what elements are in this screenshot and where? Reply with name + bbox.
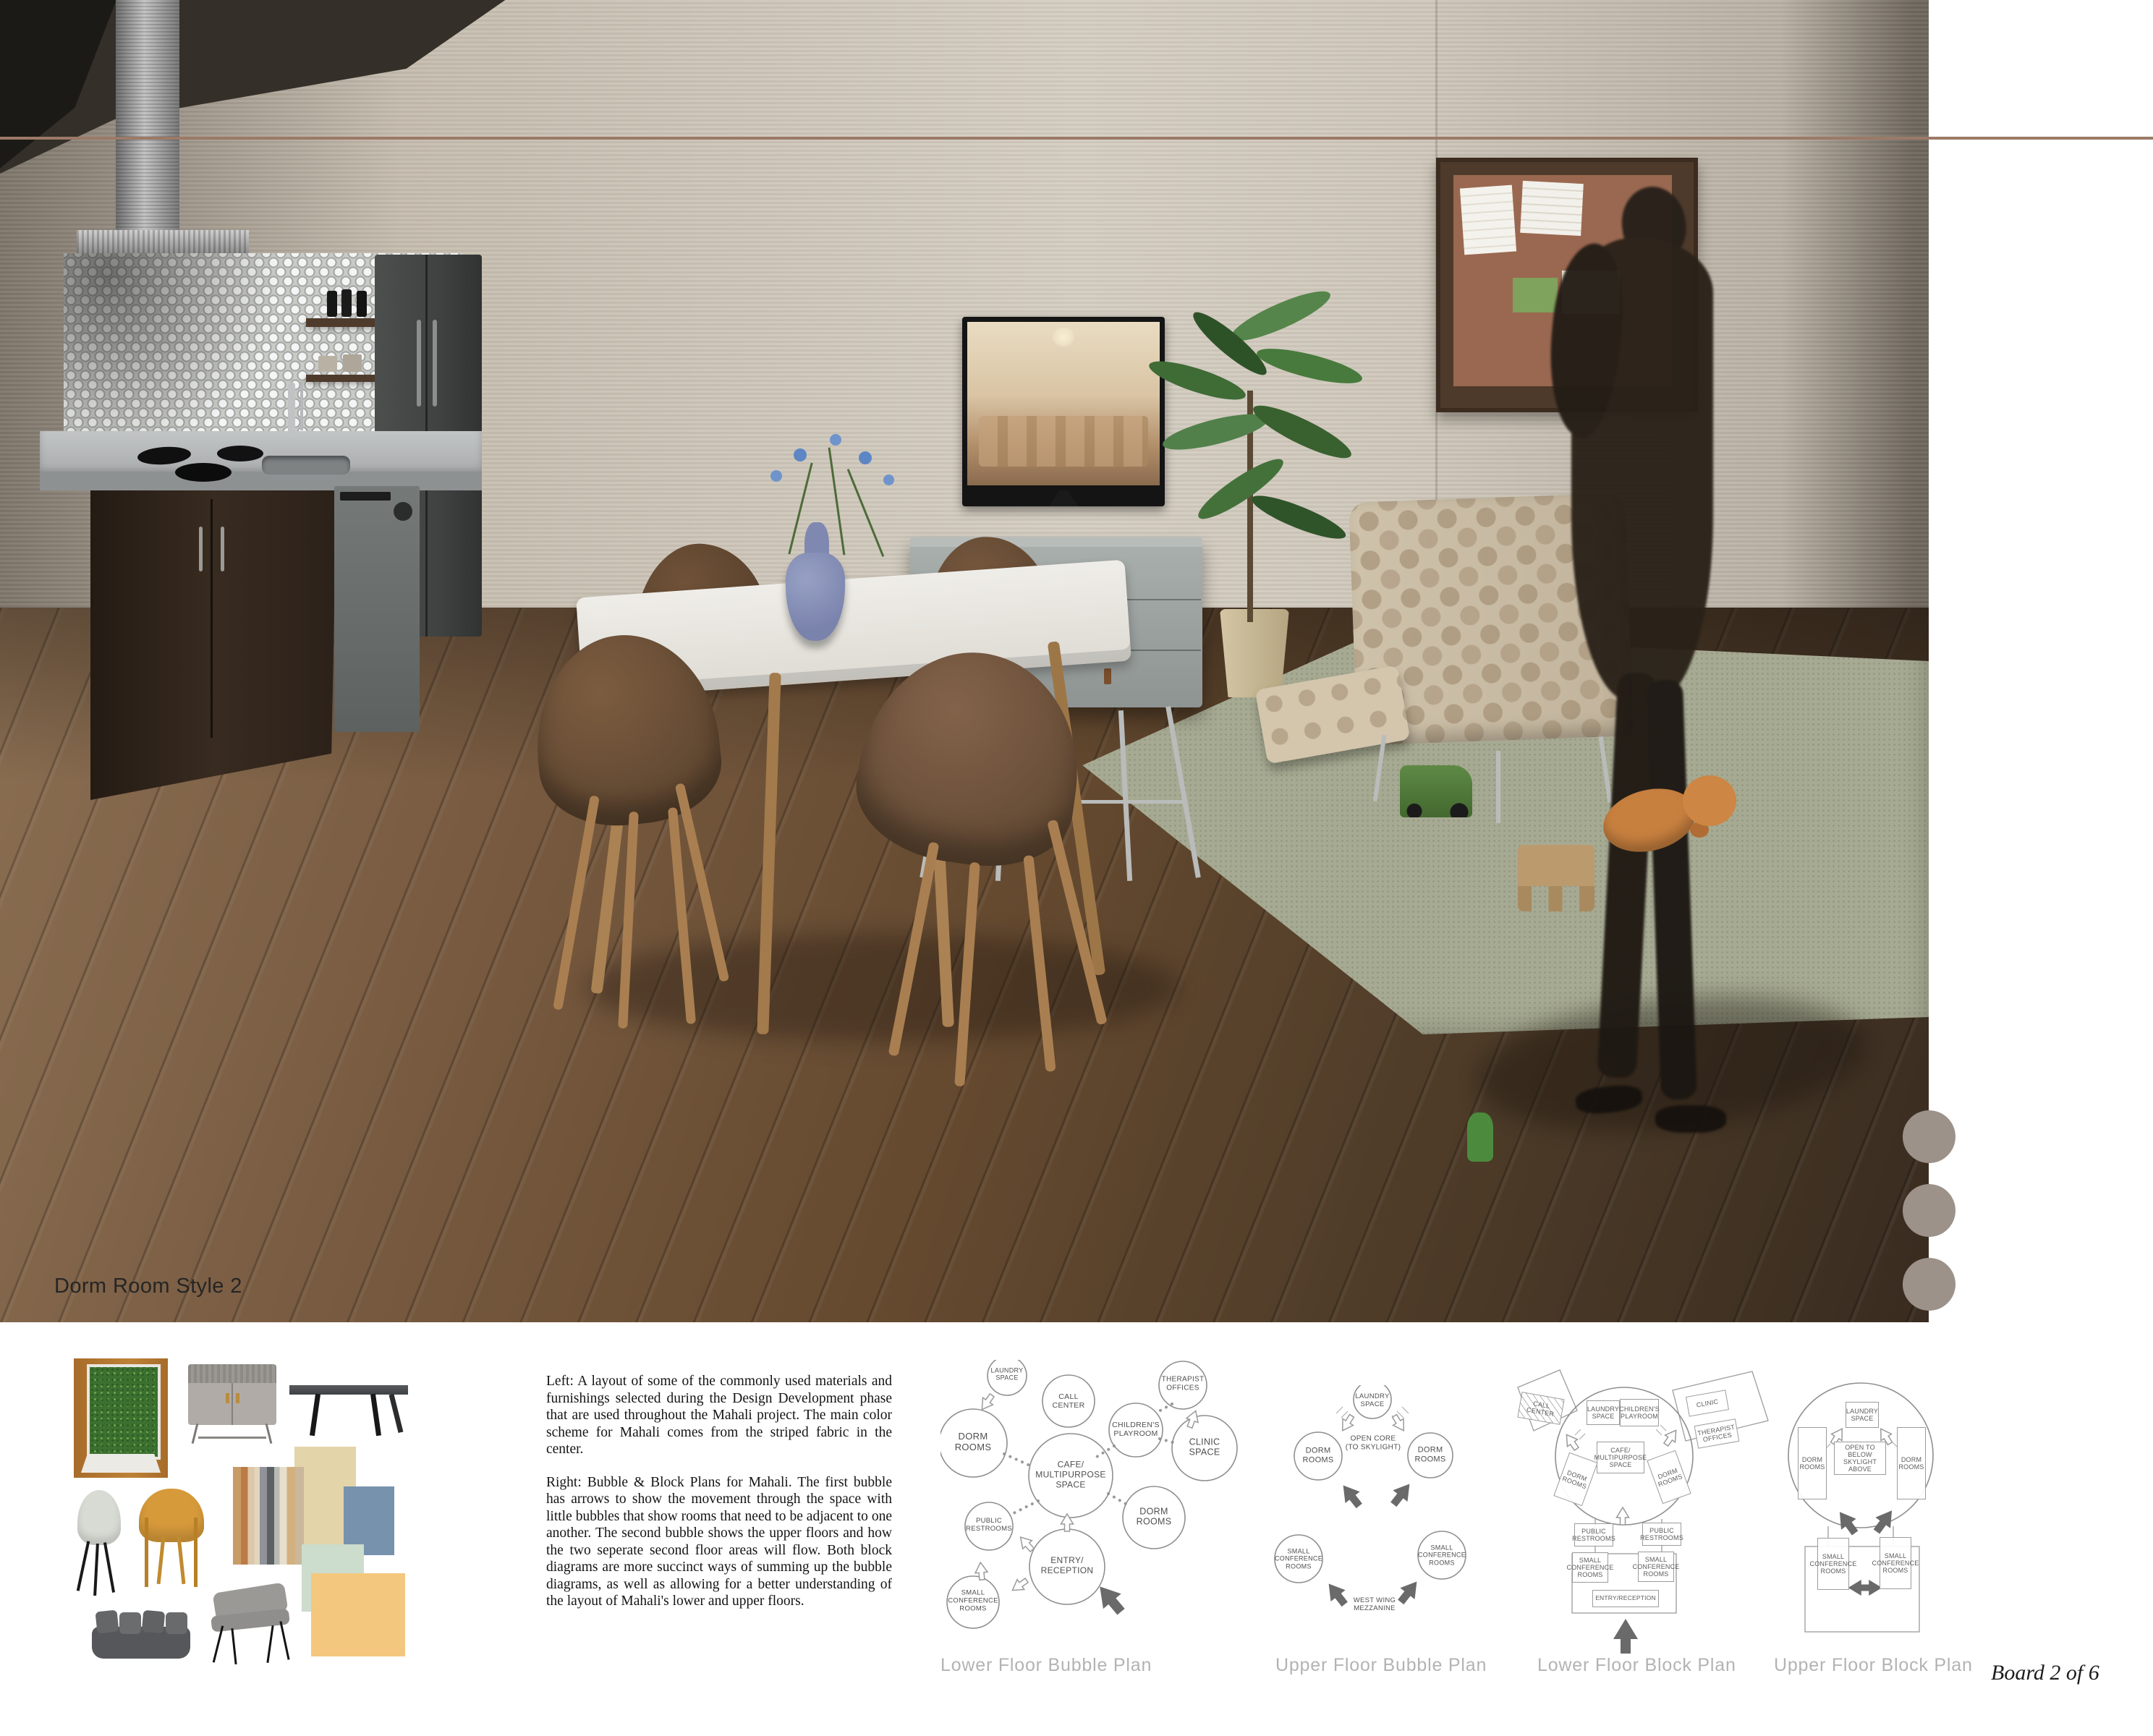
caption-lower-bubble-plan: Lower Floor Bubble Plan bbox=[940, 1655, 1152, 1676]
cabinet-handle bbox=[199, 527, 203, 571]
chair-mustard-thumbnail bbox=[137, 1489, 205, 1590]
dorm-room-render: Dorm Room Style 2 bbox=[0, 0, 1929, 1322]
bubble-label-cafe: CAFE/ MULTIPURPOSE SPACE bbox=[1035, 1460, 1105, 1489]
upper-block-svg bbox=[1772, 1367, 2076, 1693]
tv-stand bbox=[1049, 490, 1078, 506]
chair-gray-thumbnail bbox=[75, 1490, 125, 1602]
cabinet-thumbnail bbox=[181, 1358, 284, 1449]
bubble-label-entry: ENTRY/ RECEPTION bbox=[1041, 1556, 1094, 1576]
cabinet-handle bbox=[221, 527, 224, 571]
shelf-box bbox=[318, 356, 337, 372]
flower bbox=[883, 475, 894, 485]
paragraph-left: Left: A layout of some of the commonly u… bbox=[546, 1373, 892, 1458]
flower-stems bbox=[749, 433, 915, 563]
base-cabinets bbox=[90, 490, 336, 800]
fridge-handle bbox=[433, 320, 437, 407]
toy-teddy-bear-head bbox=[1683, 775, 1736, 826]
wall-shelf-lower bbox=[306, 375, 375, 382]
bubble-label-children: CHILDREN'S PLAYROOM bbox=[1112, 1421, 1160, 1438]
table-thumbnail bbox=[288, 1377, 411, 1442]
accent-line bbox=[0, 137, 2153, 140]
fridge-handle bbox=[417, 320, 421, 407]
tv-screen-furniture bbox=[979, 416, 1148, 467]
faucet bbox=[288, 382, 295, 437]
dishwasher-knob bbox=[394, 502, 412, 521]
flower bbox=[770, 470, 782, 482]
toy-wooden-animal bbox=[1518, 845, 1594, 911]
swatch-orange bbox=[311, 1573, 405, 1656]
tv-screen bbox=[967, 322, 1160, 485]
block-restrooms-right: PUBLIC RESTROOMS bbox=[1642, 1523, 1681, 1546]
flower bbox=[859, 451, 872, 464]
block-conf-left: SMALL CONFERENCE ROOMS bbox=[1817, 1538, 1849, 1590]
bubble-label-restrooms: PUBLIC RESTROOMS bbox=[966, 1518, 1012, 1533]
diagram-upper-block-plan: LAUNDRY SPACE OPEN TO BELOW SKYLIGHT ABO… bbox=[1772, 1367, 2076, 1693]
block-restrooms-left: PUBLIC RESTROOMS bbox=[1574, 1523, 1613, 1546]
block-children: CHILDREN'S PLAYROOM bbox=[1620, 1399, 1659, 1426]
diagram-lower-bubble-plan: LAUNDRY SPACE CALL CENTER THERAPIST OFFI… bbox=[940, 1360, 1252, 1678]
flower bbox=[830, 434, 841, 446]
green-wall-thumbnail bbox=[74, 1358, 168, 1478]
block-cafe: CAFE/ MULTIPURPOSE SPACE bbox=[1597, 1442, 1644, 1473]
block-dorm-right: DORM ROOMS bbox=[1897, 1427, 1926, 1499]
bubble-label-dorm-right: DORM ROOMS bbox=[1137, 1507, 1172, 1528]
bubble-label-dorm-left: DORM ROOMS bbox=[1302, 1446, 1333, 1464]
person-foot bbox=[1655, 1105, 1726, 1133]
shelf-canister bbox=[327, 291, 337, 317]
sofa-leg bbox=[1496, 751, 1500, 823]
block-entry: ENTRY/RECEPTION bbox=[1592, 1590, 1659, 1607]
block-laundry: LAUNDRY SPACE bbox=[1846, 1402, 1879, 1428]
wall-shelf-upper bbox=[306, 318, 375, 327]
cooktop-burner bbox=[217, 446, 263, 461]
upper-bubble-svg bbox=[1273, 1385, 1534, 1678]
board-number: Board 2 of 6 bbox=[1991, 1661, 2099, 1685]
block-conf-right: SMALL CONFERENCE ROOMS bbox=[1880, 1537, 1911, 1589]
person-silhouette bbox=[1541, 174, 1780, 1143]
person-leg bbox=[1647, 679, 1697, 1099]
note-open-core: OPEN CORE (TO SKYLIGHT) bbox=[1346, 1435, 1401, 1452]
bubble-label-dorm-right: DORM ROOMS bbox=[1414, 1445, 1445, 1463]
sink-basin bbox=[262, 456, 350, 475]
caption-upper-block-plan: Upper Floor Block Plan bbox=[1774, 1655, 1973, 1676]
caption-lower-block-plan: Lower Floor Block Plan bbox=[1537, 1655, 1736, 1676]
dishwasher bbox=[334, 486, 420, 732]
drawer-pull bbox=[1104, 668, 1111, 684]
bubble-label-laundry: LAUNDRY SPACE bbox=[1355, 1393, 1389, 1409]
paragraph-right: Right: Bubble & Block Plans for Mahali. … bbox=[546, 1474, 892, 1610]
side-dot bbox=[1903, 1184, 1955, 1237]
flower bbox=[794, 448, 807, 461]
block-laundry: LAUNDRY SPACE bbox=[1587, 1400, 1620, 1425]
range-hood-flue bbox=[116, 0, 179, 239]
cabinet-door-gap bbox=[211, 499, 213, 738]
plant-pot bbox=[1220, 609, 1289, 697]
diagram-upper-bubble-plan: LAUNDRY SPACE OPEN CORE (TO SKYLIGHT) DO… bbox=[1273, 1385, 1534, 1678]
bubble-label-clinic: CLINIC SPACE bbox=[1189, 1437, 1220, 1458]
caption-upper-bubble-plan: Upper Floor Bubble Plan bbox=[1275, 1655, 1487, 1676]
side-dot bbox=[1903, 1258, 1955, 1311]
bubble-label-conf-right: SMALL CONFERENCE ROOMS bbox=[1418, 1544, 1466, 1566]
block-conf-left: SMALL CONFERENCE ROOMS bbox=[1572, 1552, 1608, 1583]
presentation-board: Dorm Room Style 2 bbox=[0, 0, 2153, 1736]
bench-gray-thumbnail bbox=[208, 1588, 295, 1666]
sofa-dark-thumbnail bbox=[92, 1611, 190, 1659]
materials-collage bbox=[69, 1356, 416, 1675]
fabric-swatch-striped bbox=[233, 1467, 304, 1565]
note-west-wing-mezzanine: WEST WING MEZZANINE bbox=[1354, 1597, 1396, 1613]
cooktop-burner bbox=[175, 463, 232, 482]
description-text: Left: A layout of some of the commonly u… bbox=[546, 1373, 892, 1626]
shelf-canister bbox=[341, 289, 352, 317]
diagram-lower-block-plan: CALL CENTER LAUNDRY SPACE CHILDREN'S PLA… bbox=[1512, 1367, 1787, 1693]
block-conf-right: SMALL CONFERENCE ROOMS bbox=[1638, 1552, 1674, 1582]
shelf-box bbox=[343, 354, 362, 372]
dishwasher-controls bbox=[340, 492, 391, 501]
bubble-label-dorm-left: DORM ROOMS bbox=[955, 1431, 992, 1453]
bubble-label-small-conf: SMALL CONFERENCE ROOMS bbox=[948, 1590, 998, 1614]
range-hood bbox=[77, 230, 249, 255]
toy-tractor bbox=[1400, 765, 1472, 817]
person-foot bbox=[1574, 1083, 1643, 1115]
bubble-label-therapist: THERAPIST OFFICES bbox=[1162, 1376, 1205, 1392]
tv-screen-chandelier bbox=[1053, 328, 1074, 346]
bubble-label-laundry: LAUNDRY SPACE bbox=[991, 1367, 1024, 1382]
block-dorm-left: DORM ROOMS bbox=[1798, 1427, 1827, 1499]
render-title: Dorm Room Style 2 bbox=[54, 1275, 242, 1298]
pinned-sketch bbox=[1460, 185, 1516, 255]
side-dot bbox=[1903, 1110, 1955, 1163]
tv bbox=[962, 317, 1165, 506]
toy-bottle bbox=[1467, 1112, 1493, 1162]
shelf-canister bbox=[357, 291, 367, 317]
bubble-label-conf-left: SMALL CONFERENCE ROOMS bbox=[1275, 1547, 1322, 1570]
block-open-below: OPEN TO BELOW SKYLIGHT ABOVE bbox=[1834, 1442, 1886, 1475]
bubble-label-call-center: CALL CENTER bbox=[1053, 1392, 1085, 1410]
